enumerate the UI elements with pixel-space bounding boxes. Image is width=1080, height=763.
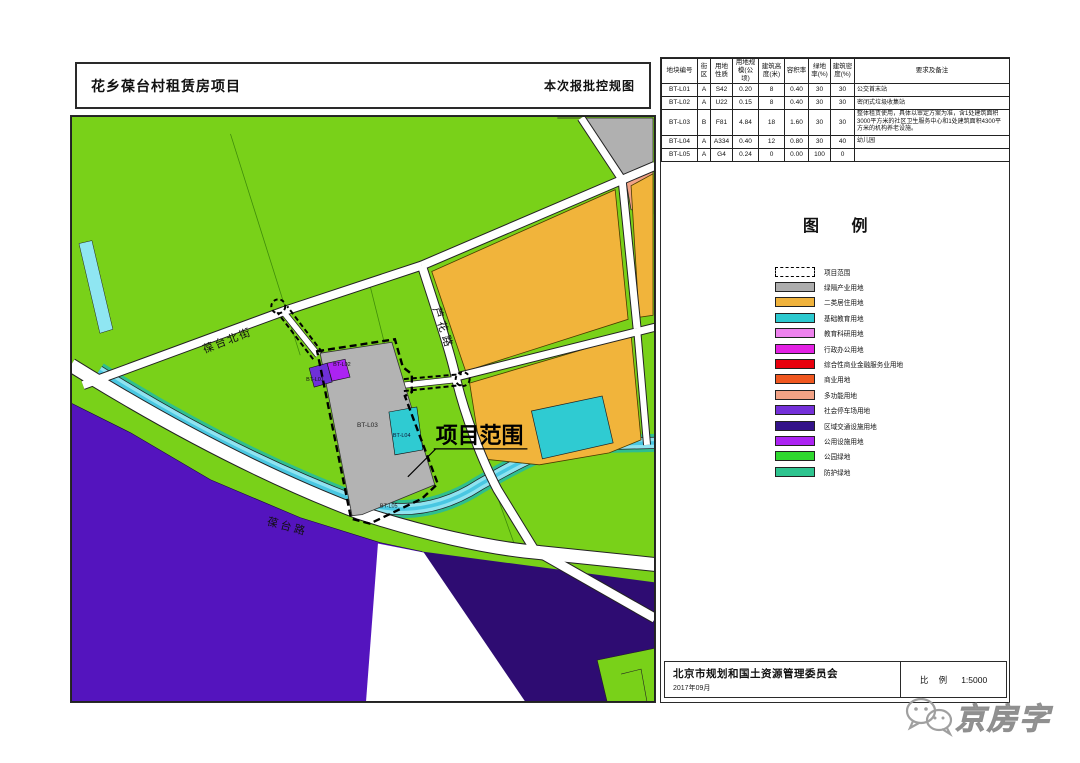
legend-item: 项目范围: [775, 264, 975, 279]
table-cell: 4.84: [733, 110, 759, 136]
legend-item: 公用设施用地: [775, 433, 975, 448]
table-cell: 100: [809, 148, 831, 161]
plot-label-bt-l03: BT-L03: [357, 422, 378, 429]
legend-item: 商业用地: [775, 372, 975, 387]
legend-item: 绿隔产业用地: [775, 279, 975, 294]
plan-sheet: 花乡葆台村租赁房项目 本次报批控规图: [0, 0, 1080, 763]
table-cell: 0.40: [785, 97, 809, 110]
project-title: 花乡葆台村租赁房项目: [91, 76, 241, 96]
legend-label: 综合性商业金融服务业用地: [824, 359, 903, 369]
legend-swatch: [775, 282, 815, 292]
table-cell: 30: [831, 97, 855, 110]
table-header-cell: 建筑高度(米): [759, 59, 785, 84]
legend-swatch: [775, 374, 815, 384]
table-row: BT-L02AU220.1580.403030密闭式垃圾收集站: [662, 97, 1010, 110]
plot-label-bt-l02: BT-L02: [333, 362, 351, 368]
table-cell: G4: [711, 148, 733, 161]
table-cell: A: [698, 148, 711, 161]
legend-swatch: [775, 359, 815, 369]
legend-swatch: [775, 421, 815, 431]
legend-swatch: [775, 344, 815, 354]
table-cell: 密闭式垃圾收集站: [855, 97, 1010, 110]
title-bar: 花乡葆台村租赁房项目 本次报批控规图: [75, 62, 651, 109]
table-header-cell: 地块编号: [662, 59, 698, 84]
table-header-cell: 建筑密度(%): [831, 59, 855, 84]
table-cell: 0: [759, 148, 785, 161]
table-cell: 0: [831, 148, 855, 161]
table-cell: 30: [809, 97, 831, 110]
table-cell: 30: [831, 110, 855, 136]
control-table: 地块编号街区用地性质用地规模(公顷)建筑高度(米)容积率绿地率(%)建筑密度(%…: [661, 58, 1010, 162]
legend-item: 综合性商业金融服务业用地: [775, 356, 975, 371]
legend-swatch: [775, 467, 815, 477]
table-cell: 30: [809, 84, 831, 97]
table-row: BT-L04AA3340.40120.803040幼儿园: [662, 135, 1010, 148]
project-scope-label: 项目范围: [436, 423, 524, 448]
table-cell: 1.60: [785, 110, 809, 136]
legend-item: 公园绿地: [775, 449, 975, 464]
table-cell: BT-L05: [662, 148, 698, 161]
control-table-head: 地块编号街区用地性质用地规模(公顷)建筑高度(米)容积率绿地率(%)建筑密度(%…: [662, 59, 1010, 84]
legend-swatch: [775, 405, 815, 415]
table-cell: S42: [711, 84, 733, 97]
table-cell: BT-L02: [662, 97, 698, 110]
legend-label: 防护绿地: [824, 467, 850, 477]
org-date: 2017年09月: [673, 683, 900, 693]
legend-label: 二类居住用地: [824, 297, 864, 307]
table-header-cell: 用地性质: [711, 59, 733, 84]
table-cell: 8: [759, 97, 785, 110]
legend-swatch: [775, 267, 815, 277]
table-row: BT-L05AG40.2400.001000: [662, 148, 1010, 161]
table-cell: A: [698, 97, 711, 110]
table-header-cell: 绿地率(%): [809, 59, 831, 84]
table-header-cell: 要求及备注: [855, 59, 1010, 84]
table-cell: 18: [759, 110, 785, 136]
table-row: BT-L03BF814.84181.603030整体租赁使用，具体以审定方案为准…: [662, 110, 1010, 136]
table-cell: U22: [711, 97, 733, 110]
table-cell: 0.15: [733, 97, 759, 110]
legend-label: 绿隔产业用地: [824, 282, 864, 292]
control-table-body: BT-L01AS420.2080.403030公交首末站BT-L02AU220.…: [662, 84, 1010, 162]
legend-swatch: [775, 390, 815, 400]
legend-swatch: [775, 451, 815, 461]
legend-item: 二类居住用地: [775, 295, 975, 310]
sheet-title: 本次报批控规图: [544, 77, 635, 94]
legend-label: 区域交通设施用地: [824, 421, 877, 431]
table-cell: 0.80: [785, 135, 809, 148]
legend-item: 防护绿地: [775, 464, 975, 479]
table-cell: 30: [809, 135, 831, 148]
legend-swatch: [775, 297, 815, 307]
plot-label-bt-l01: BT-L01: [306, 377, 324, 383]
table-header-cell: 街区: [698, 59, 711, 84]
legend-item: 行政办公用地: [775, 341, 975, 356]
table-cell: F81: [711, 110, 733, 136]
plot-label-bt-l04: BT-L04: [393, 433, 411, 439]
table-cell: 整体租赁使用，具体以审定方案为准，含1处建筑面积3000平方米的社区卫生服务中心…: [855, 110, 1010, 136]
legend-item: 教育科研用地: [775, 326, 975, 341]
legend-title: 图 例: [803, 212, 975, 236]
org-cell: 北京市规划和国土资源管理委员会 2017年09月: [665, 662, 900, 697]
table-cell: 12: [759, 135, 785, 148]
table-cell: 公交首末站: [855, 84, 1010, 97]
legend-swatch: [775, 436, 815, 446]
legend-label: 基础教育用地: [824, 313, 864, 323]
watermark-text: 京房字: [955, 694, 1051, 738]
org-name: 北京市规划和国土资源管理委员会: [673, 666, 900, 681]
table-cell: 0.24: [733, 148, 759, 161]
legend-swatch: [775, 313, 815, 323]
legend-swatch: [775, 328, 815, 338]
scale-label: 比 例: [920, 674, 951, 686]
watermark: 京房字: [903, 688, 1078, 743]
table-cell: BT-L04: [662, 135, 698, 148]
table-header-cell: 用地规模(公顷): [733, 59, 759, 84]
table-cell: 30: [809, 110, 831, 136]
legend-label: 行政办公用地: [824, 344, 864, 354]
table-cell: BT-L01: [662, 84, 698, 97]
table-row: BT-L01AS420.2080.403030公交首末站: [662, 84, 1010, 97]
table-cell: 0.40: [733, 135, 759, 148]
planning-map[interactable]: 项目范围 葆台北街 芦花路 葆台路 BT-L01 BT-L02 BT-L03 B…: [71, 116, 655, 702]
legend-item: 区域交通设施用地: [775, 418, 975, 433]
plot-label-bt-l05: BT-L05: [380, 504, 398, 510]
legend: 图 例 项目范围绿隔产业用地二类居住用地基础教育用地教育科研用地行政办公用地综合…: [775, 212, 975, 479]
scale-value: 1:5000: [961, 675, 987, 685]
legend-item: 基础教育用地: [775, 310, 975, 325]
legend-items: 项目范围绿隔产业用地二类居住用地基础教育用地教育科研用地行政办公用地综合性商业金…: [775, 264, 975, 479]
table-cell: 0.00: [785, 148, 809, 161]
table-cell: 0.20: [733, 84, 759, 97]
table-cell: A: [698, 135, 711, 148]
legend-label: 公园绿地: [824, 451, 850, 461]
legend-label: 多功能用地: [824, 390, 857, 400]
legend-label: 社会停车场用地: [824, 405, 870, 415]
table-cell: 30: [831, 84, 855, 97]
table-cell: A334: [711, 135, 733, 148]
table-cell: B: [698, 110, 711, 136]
table-header-cell: 容积率: [785, 59, 809, 84]
table-cell: BT-L03: [662, 110, 698, 136]
table-cell: 8: [759, 84, 785, 97]
table-cell: 0.40: [785, 84, 809, 97]
legend-item: 多功能用地: [775, 387, 975, 402]
wechat-logo-icon: [903, 693, 955, 739]
legend-label: 教育科研用地: [824, 328, 864, 338]
legend-label: 公用设施用地: [824, 436, 864, 446]
legend-item: 社会停车场用地: [775, 403, 975, 418]
table-cell: 40: [831, 135, 855, 148]
legend-label: 商业用地: [824, 374, 850, 384]
map-panel: 项目范围 葆台北街 芦花路 葆台路 BT-L01 BT-L02 BT-L03 B…: [70, 115, 656, 703]
legend-label: 项目范围: [824, 267, 850, 277]
table-cell: 幼儿园: [855, 135, 1010, 148]
control-table-wrap: 地块编号街区用地性质用地规模(公顷)建筑高度(米)容积率绿地率(%)建筑密度(%…: [661, 58, 1009, 162]
table-cell: A: [698, 84, 711, 97]
table-cell: [855, 148, 1010, 161]
